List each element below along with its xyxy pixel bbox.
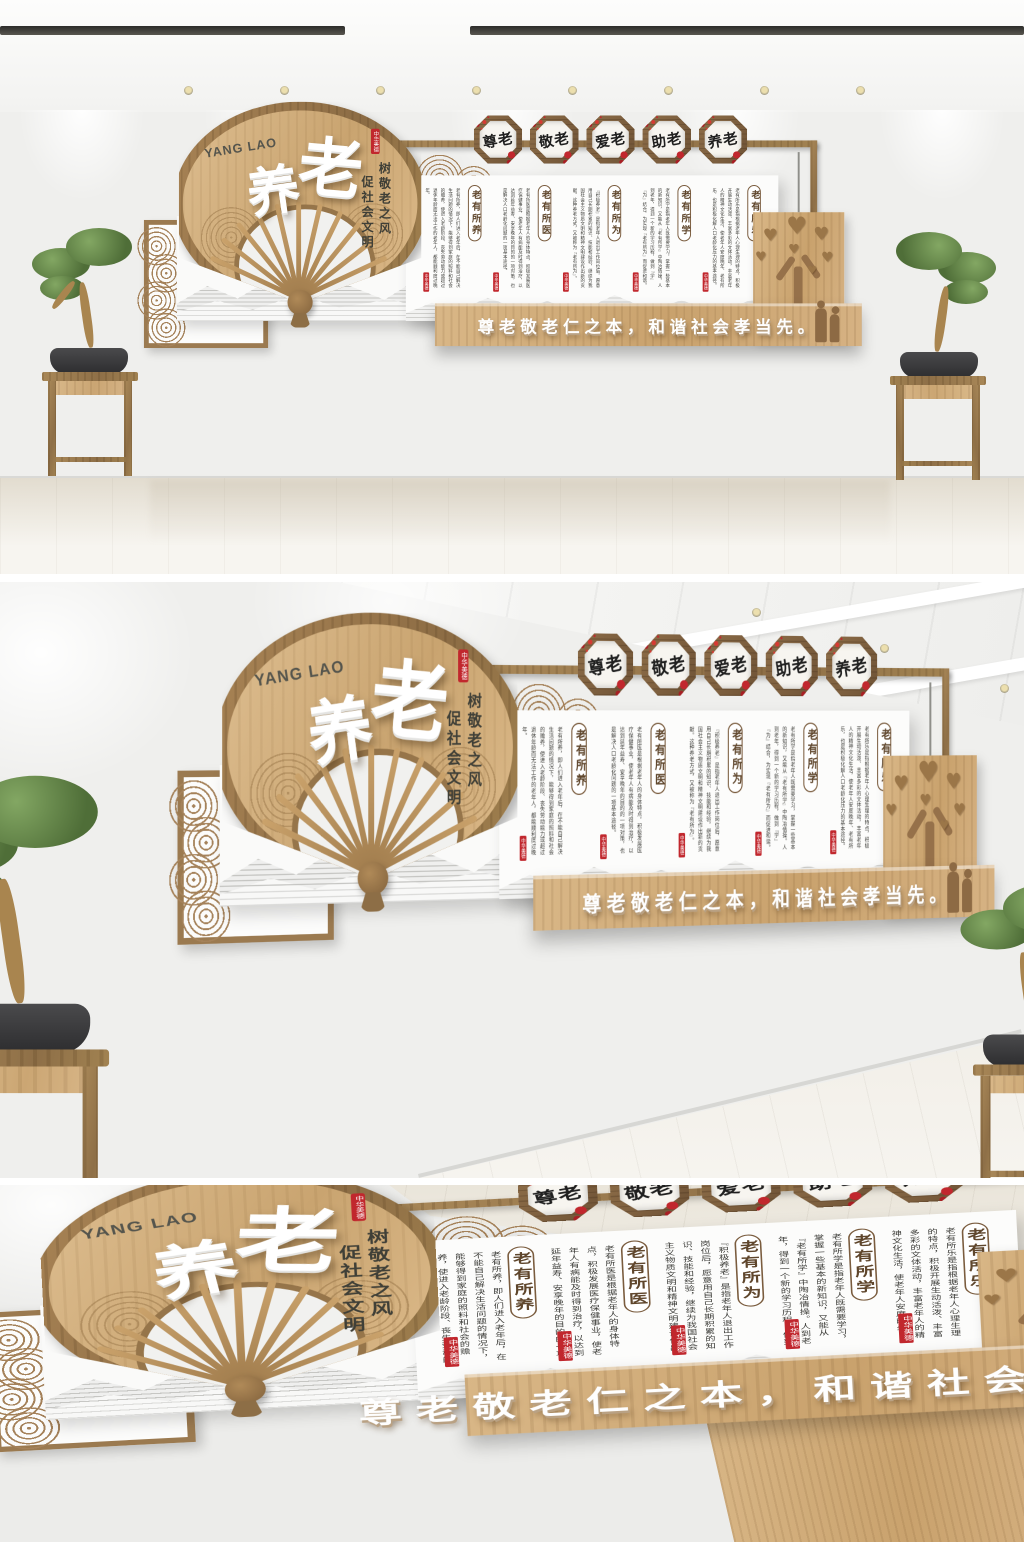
section-laoyousuoyang: 老有所养，即人们进入老年后，在不能自己解决生活问题的情况下，能够得到家庭的照料和… (419, 185, 481, 294)
heart-icon: ♥ (807, 265, 817, 276)
heart-icon: ♥ (821, 251, 833, 265)
plum-blossom-icon (862, 681, 870, 690)
section-laoyousuoyi: 老有所医是根据老年人的身体特点，积极发展医疗保健事业，使老年人有病能及时得到治疗… (596, 723, 666, 862)
slogan-bar: 尊老敬老仁之本，和谐社会孝当先。 (435, 303, 862, 346)
section-title: 老有所医 (620, 1240, 651, 1313)
badge-octagon: 尊老 (517, 1185, 599, 1223)
fan-pivot (288, 290, 313, 315)
section-title: 老有所学 (677, 185, 691, 241)
slogan-bar: 尊老敬老仁之本，和谐社会孝当先。 (533, 865, 994, 931)
plum-blossom-icon (677, 151, 684, 158)
bonsai-left (30, 226, 150, 476)
slogan-text: 尊老敬老仁之本，和谐社会孝当先。 (582, 877, 951, 918)
section-list: 老有所养，即人们进入老年后，在不能自己解决生活问题的情况下，能够得到家庭的照料和… (419, 185, 760, 294)
heart-icon: ♥ (893, 775, 908, 795)
fan-title-char-2: 老 (232, 1185, 344, 1287)
slogan-text: 尊老敬老仁之本，和谐社会孝当先。 (478, 313, 819, 337)
fan-handle (360, 892, 386, 912)
heart-icon: ♥ (953, 802, 965, 819)
bonsai-pot (900, 352, 978, 378)
culture-wall-view-1: 老有所养，即人们进入老年后，在不能自己解决生活问题的情况下，能够得到家庭的照料和… (142, 90, 879, 352)
fan-pivot (224, 1375, 266, 1405)
red-seal: 中华美德 (423, 272, 429, 291)
red-seal: 中华美德 (898, 1313, 913, 1343)
plum-blossom-icon (702, 116, 708, 122)
heart-icon: ♥ (786, 214, 807, 237)
ceiling-slot (470, 26, 1024, 35)
fan-handle (289, 313, 310, 328)
badge-octagon: 爱老 (704, 635, 757, 696)
plum-blossom-icon (829, 638, 835, 645)
section-title: 老有所养 (507, 1246, 538, 1319)
section-title: 老有所养 (467, 185, 481, 241)
plum-blossom-icon (581, 634, 588, 642)
badge-octagon: 尊老 (474, 115, 522, 164)
heart-icon: ♥ (945, 772, 961, 793)
plum-blossom-icon (508, 151, 515, 158)
badge-octagon: 养老 (826, 636, 877, 696)
heart-icon: ♥ (939, 819, 949, 832)
badge-octagon: 养老 (883, 1185, 965, 1204)
plum-blossom-icon (533, 116, 539, 122)
red-seal: 中华美德 (600, 834, 607, 859)
red-seal: 中华美德 (444, 1337, 459, 1367)
badge-octagon: 爱老 (586, 115, 635, 164)
bonsai-pot (0, 1004, 90, 1053)
heart-icon: ♥ (982, 1293, 1001, 1308)
plum-blossom-icon (733, 151, 740, 158)
plum-blossom-icon (617, 680, 625, 689)
heart-icon: ♥ (788, 243, 799, 256)
fan-red-seal: 中华美德 (371, 129, 379, 154)
fan-title-char-1: 养 (242, 145, 305, 228)
ceiling-slot (0, 26, 345, 35)
section-title: 老有所学 (803, 723, 818, 793)
red-seal: 中华美德 (671, 1325, 686, 1355)
plum-blossom-icon (941, 1187, 953, 1196)
fan-slogan-column-1: 树敬老之风 (375, 162, 393, 237)
section-title: 老有所为 (727, 723, 742, 794)
bonsai-left (0, 772, 132, 1178)
culture-wall: 老有所养，即人们进入老年后，在不能自己解决生活问题的情况下，能够得到家庭的照料和… (175, 594, 1012, 950)
heart-icon: ♥ (994, 1267, 1019, 1286)
fan-handle (229, 1400, 265, 1418)
badge-octagon: 敬老 (530, 115, 579, 164)
section-laoyousuoyang: 老有所养，即人们进入老年后，在不能自己解决生活问题的情况下，能够得到家庭的照料和… (433, 1246, 540, 1370)
wood-stand (48, 372, 132, 476)
heart-icon: ♥ (763, 228, 778, 244)
floor-reflection (150, 480, 890, 544)
badge-row: 尊老 敬老 爱老 助老 养老 (578, 633, 877, 696)
red-seal: 中华美德 (830, 830, 837, 854)
heart-icon: ♥ (813, 226, 829, 243)
badge-octagon: 敬老 (642, 634, 696, 696)
wood-stand (0, 1049, 98, 1178)
section-title: 老有所为 (734, 1234, 765, 1307)
plum-blossom-icon (742, 680, 750, 689)
badge-octagon: 助老 (766, 636, 818, 697)
section-laoyousuole: 老有所乐是指根据老年人心理生理的特点，积极开展生动活泼、丰富多彩的文体活动，丰富… (699, 185, 761, 294)
heart-icon: ♥ (919, 793, 931, 808)
heart-icon: ♥ (885, 803, 897, 819)
red-seal: 中华美德 (679, 833, 686, 858)
main-white-board: 老有所养，即人们进入老年后，在不能自己解决生活问题的情况下，能够得到家庭的照料和… (406, 175, 778, 320)
red-seal: 中华美德 (557, 1331, 572, 1361)
red-seal: 中华美德 (520, 836, 527, 861)
section-title: 老有所养 (571, 723, 587, 795)
badge-octagon: 养老 (699, 115, 748, 164)
section-laoyousuoyang: 老有所养，即人们进入老年后，在不能自己解决生活问题的情况下，能够得到家庭的照料和… (515, 723, 587, 864)
fan-slogan-column-2: 促社会文明 (331, 1244, 367, 1336)
section-title: 老有所学 (847, 1228, 878, 1301)
section-laoyousuowei: 『积极养老』是指老年人退出工作岗位后，愿意用自己长期积累的知识、技能和经验，继续… (559, 185, 621, 294)
fan-slogan-column-2: 促社会文明 (442, 710, 464, 808)
fan-slogan-column-2: 促社会文明 (357, 175, 375, 250)
badge-octagon: 尊老 (578, 633, 633, 695)
section-laoyousuowei: 『积极养老』是指老年人退出工作岗位后，愿意用自己长期积累的知识、技能和经验，继续… (674, 723, 742, 860)
heart-icon: ♥ (917, 758, 938, 786)
fan-emblem: YANG LAO 养 老 中华美德 树敬老之风 促社会文明 (179, 102, 422, 335)
wood-stand (981, 1065, 1024, 1179)
culture-wall-view-2: 老有所养，即人们进入老年后，在不能自己解决生活问题的情况下，能够得到家庭的照料和… (175, 594, 1012, 950)
plum-blossom-icon (477, 116, 483, 122)
tree-branch (1016, 1296, 1024, 1325)
red-seal: 中华美德 (563, 272, 569, 291)
fan-title-char-2: 老 (295, 115, 367, 213)
badge-octagon: 爱老 (700, 1185, 782, 1214)
wood-stand (896, 376, 980, 480)
plum-blossom-icon (645, 116, 651, 122)
plum-blossom-icon (564, 151, 571, 158)
fan-title-char-2: 老 (367, 630, 454, 760)
section-title: 老有所为 (607, 185, 621, 241)
plum-blossom-icon (645, 635, 652, 642)
bonsai-right (958, 882, 1024, 1178)
fan-red-seal: 中华美德 (351, 1193, 366, 1221)
plum-blossom-icon (589, 116, 595, 122)
section-laoyousuoxue: 老有所学是指老年人既需要学习，掌握一些基本的新知识，又能从『老有所学』中陶冶情操… (629, 185, 691, 294)
plum-blossom-icon (849, 1192, 861, 1201)
badge-octagon: 敬老 (609, 1185, 691, 1218)
fan-emblem: YANG LAO 养 老 中华美德 树敬老之风 促社会文明 (222, 610, 517, 925)
red-seal: 中华美德 (493, 272, 499, 291)
section-laoyousuoxue: 老有所学是指老年人既需要学习，掌握一些基本的新知识，又能从『老有所学』中陶冶情操… (751, 723, 818, 859)
bonsai-right (878, 230, 998, 480)
heart-icon: ♥ (755, 251, 766, 264)
badge-octagon: 助老 (792, 1185, 874, 1209)
red-seal: 中华美德 (703, 272, 709, 291)
panel-room-view: 老有所养，即人们进入老年后，在不能自己解决生活问题的情况下，能够得到家庭的照料和… (0, 0, 1024, 574)
section-title: 老有所医 (650, 723, 666, 794)
section-list: 老有所养，即人们进入老年后，在不能自己解决生活问题的情况下，能够得到家庭的照料和… (515, 723, 891, 864)
fan-title-char-1: 养 (301, 670, 378, 781)
fan-red-seal: 中华美德 (458, 649, 468, 682)
fan-pivot (358, 861, 389, 895)
culture-wall: 老有所养，即人们进入老年后，在不能自己解决生活问题的情况下，能够得到家庭的照料和… (142, 90, 879, 352)
panel-angled-view: 老有所养，即人们进入老年后，在不能自己解决生活问题的情况下，能够得到家庭的照料和… (0, 582, 1024, 1178)
showcase-page: 老有所养，即人们进入老年后，在不能自己解决生活问题的情况下，能够得到家庭的照料和… (0, 0, 1024, 1542)
plum-blossom-icon (620, 151, 627, 158)
red-seal: 中华美德 (633, 272, 639, 291)
plum-blossom-icon (680, 680, 688, 689)
badge-row: 尊老 敬老 爱老 助老 养老 (474, 115, 748, 164)
plum-blossom-icon (666, 1201, 678, 1210)
section-laoyousuowei: 『积极养老』是指老年人退出工作岗位后，愿意用自己长期积累的知识、技能和经验，继续… (660, 1234, 767, 1358)
plum-blossom-icon (575, 1206, 587, 1215)
panel-closeup-view: 老有所养，即人们进入老年后，在不能自己解决生活问题的情况下，能够得到家庭的照料和… (0, 1185, 1024, 1542)
plum-blossom-icon (758, 1197, 770, 1206)
section-list: 老有所养，即人们进入老年后，在不能自己解决生活问题的情况下，能够得到家庭的照料和… (433, 1222, 995, 1370)
red-seal: 中华美德 (755, 832, 762, 856)
section-laoyousuoyi: 老有所医是根据老年人的身体特点，积极发展医疗保健事业，使老年人有病能及时得到治疗… (546, 1240, 653, 1364)
plum-blossom-icon (769, 637, 775, 644)
bonsai-pot (50, 348, 128, 374)
bonsai-pot (983, 1035, 1024, 1068)
plum-blossom-icon (803, 681, 811, 690)
section-laoyousuoyi: 老有所医是根据老年人的身体特点，积极发展医疗保健事业，使老年人有病能及时得到治疗… (489, 185, 551, 294)
section-laoyousuoxue: 老有所学是指老年人既需要学习，掌握一些基本的新知识，又能从『老有所学』中陶冶情操… (774, 1228, 881, 1352)
red-seal: 中华美德 (784, 1319, 799, 1349)
section-laoyousuole: 老有所乐是指根据老年人心理生理的特点，积极开展生动活泼、丰富多彩的文体活动，丰富… (826, 723, 891, 857)
badge-octagon: 助老 (643, 115, 692, 164)
section-title: 老有所医 (537, 185, 551, 241)
plum-blossom-icon (708, 636, 714, 643)
elderly-couple-silhouette (813, 296, 846, 343)
fan-slogan-column-1: 树敬老之风 (463, 693, 485, 791)
